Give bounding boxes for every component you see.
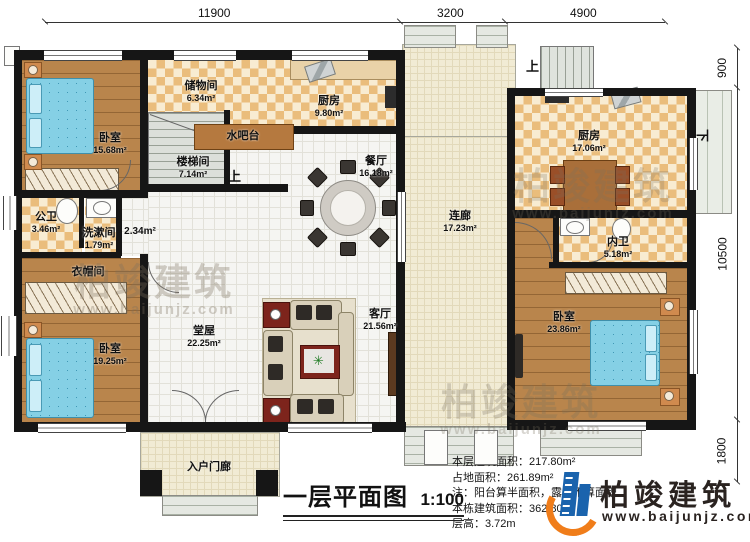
room-label-kitchen-right: 厨房 17.06m² [549, 130, 629, 154]
room-label-cloakroom: 衣帽间 [53, 266, 123, 278]
room-label-dining: 餐厅 16.18m² [336, 155, 416, 179]
room-name: 连廊 [420, 210, 500, 222]
room-label-bedroom-bl: 卧室 19.25m² [70, 343, 150, 367]
dim-3200: 3200 [437, 6, 464, 20]
cushion [316, 305, 332, 320]
dim-1800: 1800 [714, 438, 728, 465]
room-area: 9.80m² [289, 107, 369, 119]
room-label-living: 客厅 21.56m² [340, 308, 420, 332]
wall-inner-bath-bottom [549, 262, 695, 268]
nightstand [660, 298, 680, 316]
wall-bath-bottom [14, 252, 121, 258]
window [44, 50, 122, 61]
logo: 柏竣建筑 www.baijunjz.com [544, 466, 744, 536]
room-label-stairwell: 楼梯间 7.14m² [153, 156, 233, 180]
room-label-water-bar: 水吧台 [203, 130, 283, 142]
room-name: 卧室 [70, 132, 150, 144]
window [292, 50, 368, 61]
room-area: 1.79m² [66, 239, 132, 251]
cushion [296, 305, 312, 320]
stair-down-label: 下 [694, 129, 713, 142]
window [38, 423, 126, 433]
dim-10500: 10500 [716, 237, 730, 270]
room-name: 客厅 [340, 308, 420, 320]
room-name: 堂屋 [164, 325, 244, 337]
cushion [318, 399, 334, 414]
room-label-bedroom-tl: 卧室 15.68m² [70, 132, 150, 156]
pillow [29, 118, 42, 148]
pillow [29, 84, 42, 114]
cushion [297, 399, 313, 414]
sink-basin [566, 221, 584, 234]
wall-bedroom-tl-right [140, 58, 148, 198]
room-label-inner-bath: 内卫 5.18m² [578, 236, 658, 260]
wall-bedroom-bl-right [140, 254, 148, 424]
room-label-hall-nook: 2.34m² [118, 226, 162, 238]
patio [402, 44, 516, 140]
room-name: 卧室 [70, 343, 150, 355]
logo-website: www.baijunjz.com [602, 508, 750, 524]
title-scale: 1:100 [420, 490, 463, 509]
window [689, 310, 698, 374]
window [568, 421, 646, 431]
room-area: 16.18m² [336, 167, 416, 179]
room-name: 餐厅 [336, 155, 416, 167]
chair [382, 200, 396, 216]
room-area: 22.25m² [164, 337, 244, 349]
room-label-bedroom-r: 卧室 23.86m² [524, 311, 604, 335]
chair [550, 166, 565, 184]
window [545, 88, 603, 97]
window [397, 192, 406, 262]
wall-stairwell-bottom [148, 184, 288, 192]
wall-inner-bath-left [553, 218, 559, 264]
dim-11900: 11900 [198, 6, 230, 20]
chair [615, 188, 630, 206]
entry-steps [162, 495, 258, 516]
room-area: 23.86m² [524, 323, 604, 335]
stair-up-label: 上 [526, 56, 539, 75]
chair [300, 200, 314, 216]
lamp [270, 309, 281, 320]
room-area: 19.25m² [70, 355, 150, 367]
title-text: 一层平面图 [283, 484, 408, 511]
room-label-corridor: 连廊 17.23m² [420, 210, 500, 234]
plant: ✳ [313, 353, 324, 369]
room-area: 6.34m² [161, 92, 241, 104]
porch-pillar [474, 430, 498, 465]
room-label-porch: 入户门廊 [169, 461, 249, 473]
wardrobe-bedroom-r [565, 272, 667, 294]
cushion [268, 336, 283, 352]
wardrobe-cloakroom [25, 282, 127, 314]
room-area: 5.18m² [578, 248, 658, 260]
wall-bedroom-tl-bottom [14, 190, 148, 198]
window [689, 138, 698, 190]
chair [615, 166, 630, 184]
room-area: 7.14m² [153, 168, 233, 180]
drawing-title: 一层平面图 1:100 [283, 477, 464, 521]
entry-pillar [140, 470, 162, 496]
bay-window [1, 316, 17, 356]
pillow [645, 354, 657, 381]
pillow [645, 325, 657, 352]
nightstand [660, 388, 680, 406]
room-area: 21.56m² [340, 320, 420, 332]
kitchen-table [563, 160, 617, 212]
room-name: 公卫 [13, 211, 79, 223]
wall-dining-top [286, 126, 405, 134]
nightstand [24, 154, 42, 170]
room-name: 内卫 [578, 236, 658, 248]
patio-steps-left [404, 25, 456, 48]
room-area: 17.06m² [549, 142, 629, 154]
chair [550, 188, 565, 206]
wall-left [14, 50, 22, 432]
cushion [268, 364, 283, 380]
floor-plan-canvas: 11900 3200 4900 900 10500 1800 上 下 [0, 0, 750, 542]
dim-line-right [737, 48, 738, 482]
entry-pillar [256, 470, 278, 496]
nightstand [24, 62, 42, 78]
dresser [515, 334, 523, 378]
room-area: 17.23m² [420, 222, 500, 234]
dim-4900: 4900 [570, 6, 597, 20]
nightstand [24, 322, 42, 338]
room-area: 2.34m² [118, 226, 162, 238]
room-name: 衣帽间 [53, 266, 123, 278]
room-name: 储物间 [161, 80, 241, 92]
lamp [270, 405, 281, 416]
dim-line-top [45, 22, 665, 23]
title-underline [283, 515, 464, 521]
wall-right-left [507, 88, 515, 428]
room-name: 水吧台 [203, 130, 283, 142]
dim-900: 900 [715, 58, 729, 78]
right-porch-steps [540, 428, 642, 456]
pillow [29, 380, 42, 412]
room-name: 入户门廊 [169, 461, 249, 473]
room-name: 厨房 [549, 130, 629, 142]
chair [340, 242, 356, 256]
room-label-storage: 储物间 6.34m² [161, 80, 241, 104]
patio-steps-right [476, 25, 508, 48]
room-label-kitchen-left: 厨房 9.80m² [289, 95, 369, 119]
room-name: 卧室 [524, 311, 604, 323]
room-area: 15.68m² [70, 144, 150, 156]
corridor-floor [402, 136, 514, 428]
room-label-main-hall: 堂屋 22.25m² [164, 325, 244, 349]
wall-kitchen-r-bottom [513, 210, 695, 218]
dining-table-top [330, 190, 366, 226]
window [174, 50, 236, 61]
room-name: 楼梯间 [153, 156, 233, 168]
pillow [29, 344, 42, 376]
porch-pillar [424, 430, 448, 465]
logo-icon [544, 468, 596, 528]
exterior-stair-up [540, 46, 594, 90]
sink-basin [93, 201, 111, 215]
room-name: 厨房 [289, 95, 369, 107]
stairwell-up-label: 上 [228, 166, 241, 185]
window [288, 423, 372, 433]
